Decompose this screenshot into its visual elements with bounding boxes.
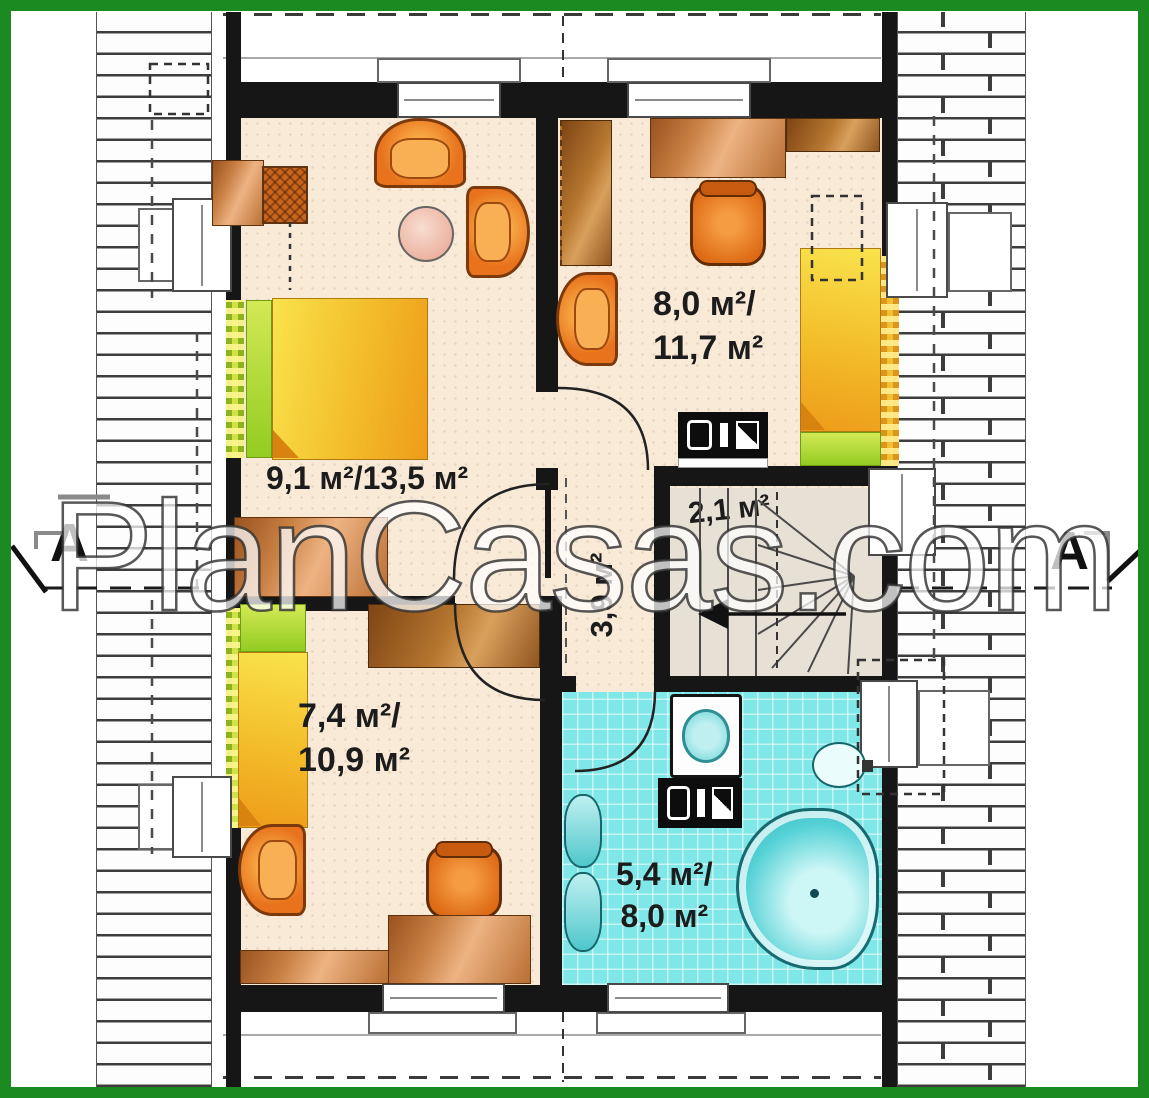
exterior-wall-top bbox=[226, 82, 897, 118]
desk bbox=[240, 950, 390, 984]
wall-bathroom-top-a bbox=[562, 676, 576, 692]
window-right-upper bbox=[886, 202, 948, 298]
stove-base bbox=[678, 458, 768, 468]
divider-icon bbox=[697, 789, 704, 816]
dressing-table bbox=[212, 160, 264, 226]
window-sill bbox=[948, 212, 1012, 292]
office-chair bbox=[426, 845, 502, 919]
wall-hall-left bbox=[540, 596, 562, 1012]
fascia-line-bottom bbox=[223, 1034, 881, 1036]
window-sill bbox=[377, 58, 521, 83]
armchair bbox=[556, 272, 618, 366]
bed-passthrough-checker bbox=[226, 300, 244, 458]
watermark: PlanCasas.com bbox=[50, 468, 1109, 647]
wardrobe bbox=[560, 120, 612, 266]
armchair bbox=[238, 824, 306, 916]
floor-plan-canvas: 9,1 м²/13,5 м² 8,0 м²/ 11,7 м² 2,1 м² 3,… bbox=[0, 0, 1149, 1098]
wall-bedrooms-hall bbox=[536, 82, 558, 392]
window-top-left bbox=[397, 82, 501, 118]
area-line: 10,9 м² bbox=[298, 738, 410, 782]
armchair bbox=[466, 186, 530, 278]
bed-pillow bbox=[246, 300, 272, 458]
window-sill bbox=[368, 1012, 517, 1034]
window-top-right bbox=[627, 82, 751, 118]
burner-icon bbox=[667, 786, 691, 819]
window-sill bbox=[607, 58, 771, 83]
sink bbox=[812, 742, 866, 788]
desk bbox=[650, 118, 786, 178]
fascia-line-top bbox=[223, 57, 881, 59]
hatch-icon bbox=[712, 787, 734, 818]
window-sill bbox=[138, 208, 174, 282]
window-right-bathroom bbox=[860, 680, 918, 768]
boiler-stove bbox=[658, 778, 742, 828]
office-chair bbox=[690, 184, 766, 266]
armchair bbox=[374, 118, 466, 188]
room-label-bedroom-bottom-left: 7,4 м²/ 10,9 м² bbox=[298, 694, 410, 782]
shelf bbox=[786, 118, 880, 152]
wall-bathroom-top-b bbox=[655, 676, 882, 692]
eave-dashed-edge-bottom bbox=[223, 1076, 881, 1079]
wash-basin bbox=[564, 872, 602, 952]
heating-stove bbox=[678, 412, 768, 458]
room-label-bedroom-top-right: 8,0 м²/ 11,7 м² bbox=[653, 282, 763, 370]
bed-pillow bbox=[800, 432, 881, 466]
window-bottom-bathroom bbox=[607, 983, 729, 1013]
area-line: 11,7 м² bbox=[653, 326, 763, 370]
area-line: 8,0 м²/ bbox=[653, 282, 763, 326]
area-line: 7,4 м²/ bbox=[298, 694, 410, 738]
washing-machine bbox=[670, 694, 742, 778]
window-sill bbox=[138, 784, 174, 850]
hatch-icon bbox=[736, 421, 759, 449]
window-bottom-left bbox=[382, 983, 505, 1013]
window-left-lower bbox=[172, 776, 232, 858]
window-sill bbox=[596, 1012, 746, 1034]
window-sill bbox=[918, 690, 990, 766]
divider-icon bbox=[720, 423, 728, 447]
double-bed bbox=[272, 298, 428, 460]
room-label-bathroom: 5,4 м²/ 8,0 м² bbox=[616, 854, 713, 937]
area-line: 8,0 м² bbox=[616, 896, 713, 938]
burner-icon bbox=[687, 420, 712, 450]
area-line: 5,4 м²/ bbox=[616, 854, 713, 896]
wash-basin bbox=[564, 794, 602, 868]
eave-dashed-edge-top bbox=[223, 13, 881, 16]
desk bbox=[388, 915, 531, 984]
dressing-stool bbox=[262, 166, 308, 224]
single-bed bbox=[800, 248, 881, 432]
section-arrow-left bbox=[12, 546, 46, 592]
round-table bbox=[398, 206, 454, 262]
